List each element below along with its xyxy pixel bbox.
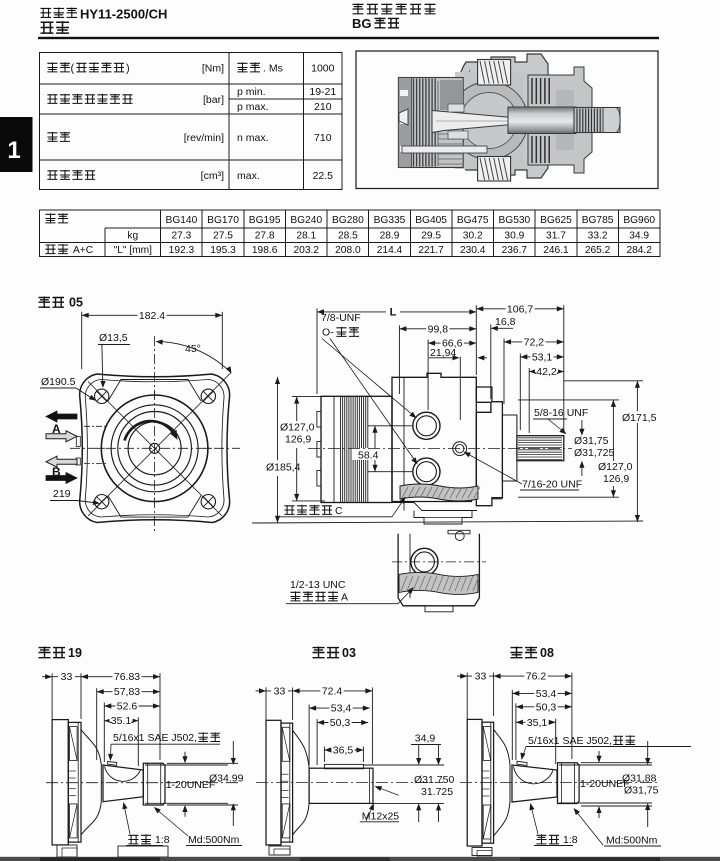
svg-text:BG785: BG785 bbox=[582, 215, 614, 226]
svg-text:"L" [mm]: "L" [mm] bbox=[114, 245, 153, 256]
svg-text:195.3: 195.3 bbox=[210, 245, 236, 256]
svg-text:BG625: BG625 bbox=[540, 215, 572, 226]
svg-text:236.7: 236.7 bbox=[502, 245, 528, 256]
svg-text:1: 1 bbox=[7, 137, 20, 164]
svg-text:03: 03 bbox=[342, 646, 356, 660]
svg-text:76.2: 76.2 bbox=[526, 671, 547, 683]
svg-text:BG405: BG405 bbox=[415, 215, 447, 226]
svg-text:53,1: 53,1 bbox=[532, 351, 553, 363]
svg-text:7/16-20 UNF: 7/16-20 UNF bbox=[522, 479, 582, 491]
svg-text:M12x25: M12x25 bbox=[362, 810, 400, 822]
svg-text:33: 33 bbox=[61, 671, 73, 683]
svg-text:246.1: 246.1 bbox=[543, 245, 569, 256]
svg-text:kg: kg bbox=[127, 231, 138, 242]
svg-text:Ø31,725: Ø31,725 bbox=[574, 447, 614, 459]
svg-text:1/2-13 UNC: 1/2-13 UNC bbox=[290, 579, 346, 591]
svg-text:50,3: 50,3 bbox=[330, 717, 351, 729]
svg-text:72.4: 72.4 bbox=[322, 685, 343, 697]
svg-text:221.7: 221.7 bbox=[418, 245, 444, 256]
svg-text:50,3: 50,3 bbox=[536, 701, 557, 713]
svg-text:52.6: 52.6 bbox=[117, 701, 138, 713]
svg-text:21,94: 21,94 bbox=[430, 347, 456, 359]
svg-text:28.9: 28.9 bbox=[380, 231, 400, 242]
svg-text:22.5: 22.5 bbox=[313, 170, 334, 182]
svg-text:31.7: 31.7 bbox=[546, 231, 566, 242]
svg-text:BG960: BG960 bbox=[623, 215, 655, 226]
svg-text:34.9: 34.9 bbox=[629, 231, 649, 242]
svg-text:30.9: 30.9 bbox=[504, 231, 524, 242]
svg-text:284.2: 284.2 bbox=[626, 245, 652, 256]
svg-text:126,9: 126,9 bbox=[603, 473, 629, 485]
svg-text:Md:500Nm: Md:500Nm bbox=[606, 835, 658, 847]
svg-text:214.4: 214.4 bbox=[377, 245, 403, 256]
svg-text:35.1: 35.1 bbox=[111, 715, 132, 727]
svg-text:BG140: BG140 bbox=[166, 215, 198, 226]
svg-text:[rev/min]: [rev/min] bbox=[184, 132, 224, 144]
svg-text:16,8: 16,8 bbox=[495, 316, 516, 328]
svg-text:BG335: BG335 bbox=[374, 215, 406, 226]
svg-text:710: 710 bbox=[314, 132, 332, 144]
svg-text:203.2: 203.2 bbox=[294, 245, 320, 256]
svg-text:5/16x1 SAE J502,: 5/16x1 SAE J502, bbox=[113, 732, 197, 744]
svg-text:28.1: 28.1 bbox=[296, 231, 316, 242]
svg-text:Ø185,4: Ø185,4 bbox=[266, 462, 301, 474]
svg-text:Ø31.750: Ø31.750 bbox=[414, 774, 454, 786]
svg-text:33: 33 bbox=[475, 671, 487, 683]
svg-text:5/8-16 UNF: 5/8-16 UNF bbox=[534, 407, 588, 419]
svg-text:126,9: 126,9 bbox=[285, 434, 311, 446]
svg-text:[cm³]: [cm³] bbox=[201, 170, 224, 182]
svg-text:max.: max. bbox=[237, 170, 260, 182]
svg-text:Ø127,0: Ø127,0 bbox=[598, 461, 633, 473]
svg-text:210: 210 bbox=[314, 101, 332, 113]
svg-text:p max.: p max. bbox=[237, 101, 269, 113]
svg-text:5/16x1 SAE J502,: 5/16x1 SAE J502, bbox=[528, 735, 612, 747]
svg-text:05: 05 bbox=[69, 296, 83, 310]
svg-text:08: 08 bbox=[540, 646, 554, 660]
svg-text:230.4: 230.4 bbox=[460, 245, 486, 256]
svg-text:1000: 1000 bbox=[311, 63, 335, 75]
svg-text:BG: BG bbox=[352, 16, 372, 31]
svg-text:[Nm]: [Nm] bbox=[202, 63, 224, 75]
svg-text:Md:500Nm: Md:500Nm bbox=[188, 834, 240, 846]
svg-text:BG280: BG280 bbox=[332, 215, 364, 226]
svg-text:Ø31,75: Ø31,75 bbox=[574, 435, 609, 447]
svg-text:1:8: 1:8 bbox=[155, 834, 170, 846]
svg-text:106,7: 106,7 bbox=[507, 303, 533, 315]
svg-text:BG530: BG530 bbox=[498, 215, 530, 226]
svg-text:BG195: BG195 bbox=[249, 215, 281, 226]
svg-text:28.5: 28.5 bbox=[338, 231, 358, 242]
svg-text:[bar]: [bar] bbox=[203, 94, 224, 106]
svg-text:HY11-2500/CH: HY11-2500/CH bbox=[80, 7, 167, 22]
svg-text:35,1: 35,1 bbox=[527, 717, 548, 729]
svg-text:99,8: 99,8 bbox=[428, 323, 449, 335]
svg-text:BG475: BG475 bbox=[457, 215, 489, 226]
svg-text:42,2: 42,2 bbox=[536, 366, 557, 378]
svg-text:1-20UNEF: 1-20UNEF bbox=[166, 779, 216, 791]
svg-text:72,2: 72,2 bbox=[524, 336, 545, 348]
svg-text:Ø34.99: Ø34.99 bbox=[209, 773, 244, 785]
svg-text:29.5: 29.5 bbox=[421, 231, 441, 242]
svg-text:BG240: BG240 bbox=[290, 215, 322, 226]
svg-text:L: L bbox=[390, 307, 397, 319]
svg-text:31.725: 31.725 bbox=[421, 786, 453, 798]
svg-text:Ø13,5: Ø13,5 bbox=[99, 332, 128, 344]
svg-text:Ø171,5: Ø171,5 bbox=[622, 412, 657, 424]
svg-text:198.6: 198.6 bbox=[252, 245, 278, 256]
svg-text:Ø190.5: Ø190.5 bbox=[41, 376, 76, 388]
svg-text:p min.: p min. bbox=[237, 86, 266, 98]
svg-text:Ø31,88: Ø31,88 bbox=[622, 773, 657, 785]
svg-text:208.0: 208.0 bbox=[335, 245, 361, 256]
svg-text:30.2: 30.2 bbox=[463, 231, 483, 242]
svg-text:A: A bbox=[341, 591, 348, 603]
svg-text:219: 219 bbox=[53, 488, 71, 500]
svg-text:58.4: 58.4 bbox=[358, 450, 379, 462]
svg-text:57,83: 57,83 bbox=[114, 686, 140, 698]
svg-text:27.3: 27.3 bbox=[171, 231, 191, 242]
svg-text:33.2: 33.2 bbox=[588, 231, 608, 242]
svg-text:192.3: 192.3 bbox=[169, 245, 195, 256]
svg-text:A+C: A+C bbox=[73, 245, 93, 256]
svg-text:Ø31,75: Ø31,75 bbox=[624, 785, 659, 797]
svg-text:19-21: 19-21 bbox=[309, 86, 336, 98]
svg-text:36,5: 36,5 bbox=[333, 745, 354, 757]
svg-text:27.8: 27.8 bbox=[255, 231, 275, 242]
svg-text:76.83: 76.83 bbox=[114, 671, 140, 683]
svg-text:182.4: 182.4 bbox=[139, 310, 165, 322]
svg-text:n max.: n max. bbox=[237, 132, 269, 144]
svg-text:1:8: 1:8 bbox=[563, 834, 578, 846]
svg-text:): ) bbox=[126, 63, 130, 75]
svg-text:27.5: 27.5 bbox=[213, 231, 233, 242]
svg-text:BG170: BG170 bbox=[207, 215, 239, 226]
svg-text:34,9: 34,9 bbox=[415, 733, 436, 745]
svg-text:45°: 45° bbox=[185, 343, 201, 355]
svg-text:O-: O- bbox=[322, 327, 334, 339]
svg-text:33: 33 bbox=[274, 685, 286, 697]
svg-text:265.2: 265.2 bbox=[585, 245, 611, 256]
svg-text:Ø127,0: Ø127,0 bbox=[280, 422, 315, 434]
svg-text:C: C bbox=[335, 505, 343, 517]
svg-text:. Ms: . Ms bbox=[263, 63, 283, 75]
svg-text:7/8-UNF: 7/8-UNF bbox=[321, 312, 361, 324]
svg-text:19: 19 bbox=[68, 646, 82, 660]
svg-text:(: ( bbox=[71, 63, 75, 75]
svg-text:53,4: 53,4 bbox=[331, 703, 352, 715]
